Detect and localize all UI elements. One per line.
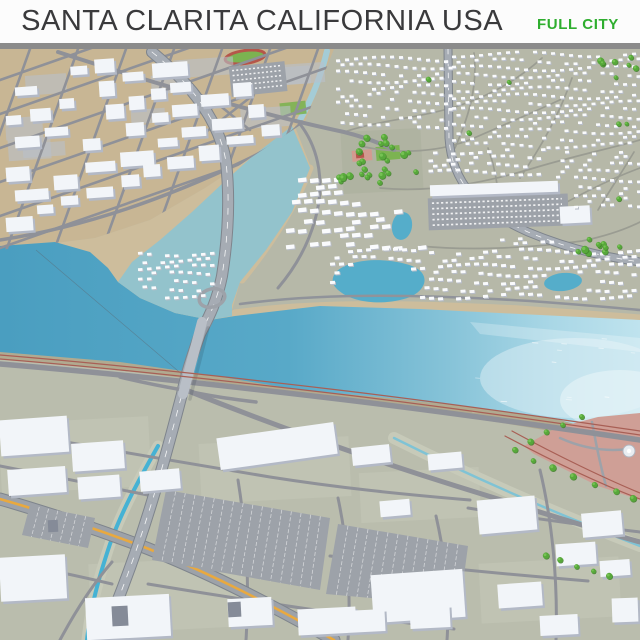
mall-parking (428, 193, 569, 230)
city-3d-scene (0, 49, 640, 640)
title-bar: SANTA CLARITA CALIFORNIA USA FULL CITY (0, 0, 640, 43)
full-city-badge: FULL CITY (537, 11, 619, 33)
page-title: SANTA CLARITA CALIFORNIA USA (21, 5, 503, 38)
city-map-render (0, 49, 640, 640)
